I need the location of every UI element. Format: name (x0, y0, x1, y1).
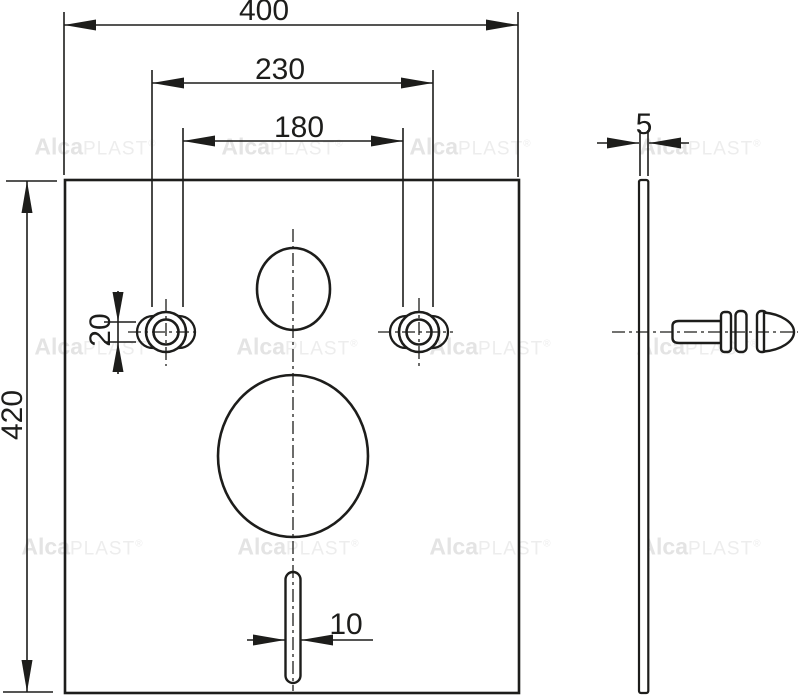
side-plate-profile (639, 180, 648, 693)
arrowhead (486, 20, 518, 31)
dim-label-10: 10 (329, 608, 362, 641)
dim-label-5: 5 (636, 108, 653, 141)
arrowhead (649, 138, 681, 149)
dim-width-400: 400 (64, 0, 518, 177)
dim-thickness-5: 5 (597, 108, 689, 176)
arrowhead (152, 78, 184, 89)
drawing-svg: 400 230 180 (0, 0, 800, 697)
dim-slot-10: 10 (247, 608, 373, 646)
dim-height-420: 420 (0, 181, 57, 692)
arrowhead (253, 635, 285, 646)
centerlines (128, 229, 453, 691)
dim-label-420: 420 (0, 390, 29, 440)
arrowhead (371, 136, 403, 147)
arrowhead (22, 660, 33, 692)
arrowhead (607, 138, 639, 149)
technical-drawing: AlcaPLAST®AlcaPLAST®AlcaPLAST®AlcaPLAST®… (0, 0, 800, 697)
dim-label-230: 230 (255, 53, 305, 86)
arrowhead (22, 181, 33, 213)
front-view: 400 230 180 (0, 0, 519, 693)
arrowhead (64, 20, 96, 31)
arrowhead (401, 78, 433, 89)
arrowhead (301, 635, 333, 646)
dim-label-180: 180 (274, 111, 324, 144)
insulation-plate-outline (65, 180, 519, 693)
arrowhead (183, 136, 215, 147)
dim-label-400: 400 (239, 0, 289, 27)
dim-label-20: 20 (84, 313, 117, 346)
side-view: 5 (597, 108, 798, 693)
